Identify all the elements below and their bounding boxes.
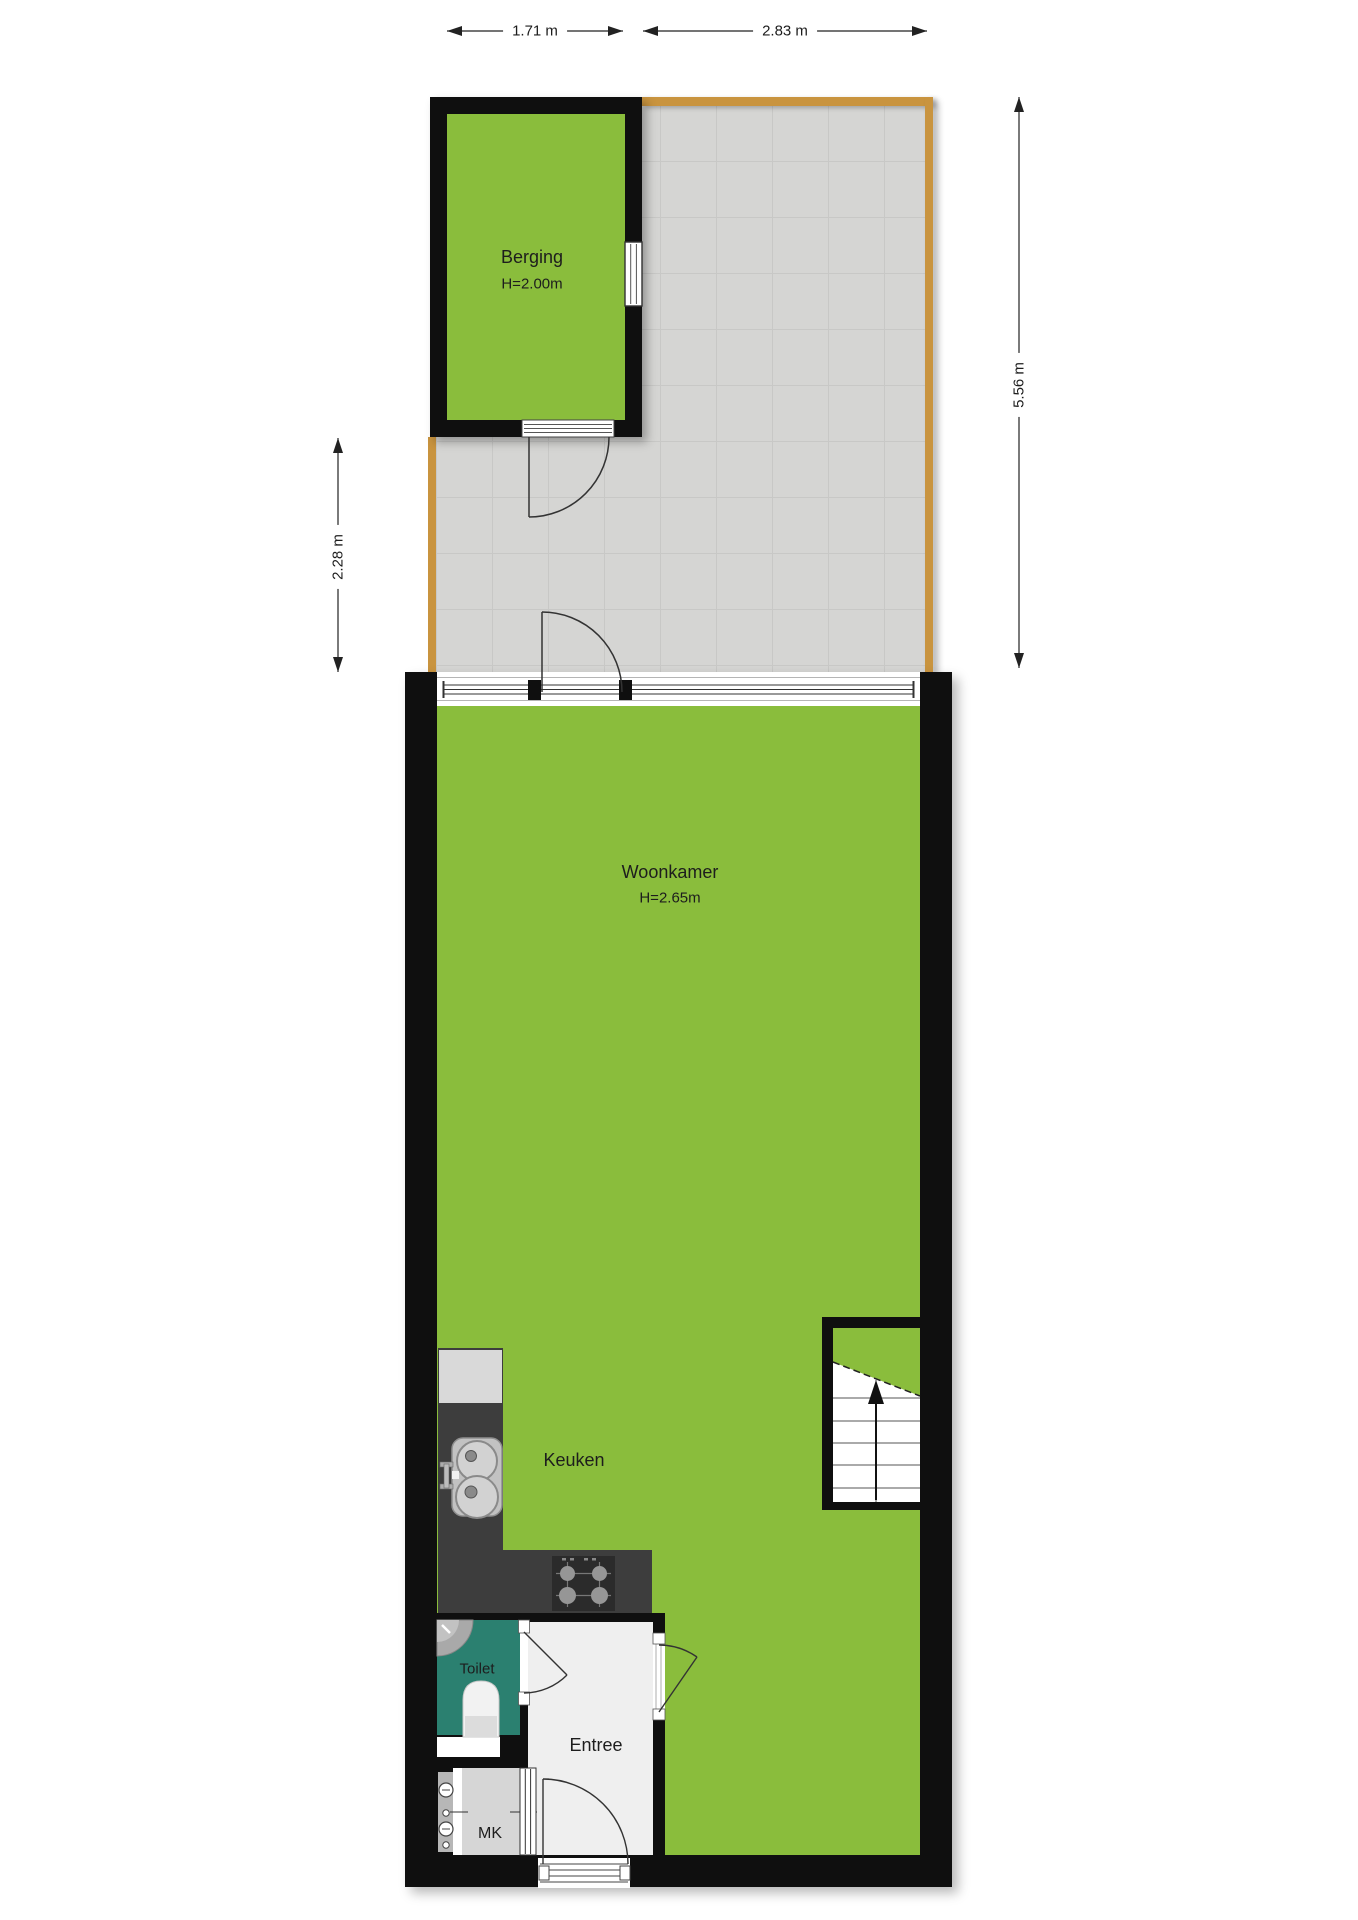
room-label-woonkamer: Woonkamer (622, 863, 719, 881)
berging-room (447, 114, 625, 420)
kitchen-hob (552, 1556, 615, 1611)
terrace-fence-top (642, 97, 933, 106)
wall-bottom (405, 1855, 952, 1887)
floorplan-canvas: Berging H=2.00m Woonkamer H=2.65m Keuken… (0, 0, 1358, 1920)
room-label-toilet: Toilet (459, 1662, 494, 1677)
dimension-label-terrace-left-depth: 2.28 m (329, 525, 348, 589)
kitchen-worktop (439, 1350, 502, 1403)
stairs-well (833, 1328, 920, 1502)
dimension-label-terrace-width: 2.83 m (753, 22, 817, 41)
dimension-label-berging-width: 1.71 m (503, 22, 567, 41)
room-ceiling-woonkamer: H=2.65m (639, 891, 700, 906)
room-label-keuken: Keuken (543, 1451, 604, 1469)
room-label-entree: Entree (569, 1736, 622, 1754)
terrace-fence-left (428, 437, 436, 672)
glass-facade-band (437, 672, 920, 706)
mk-meter-cabinet (438, 1772, 453, 1852)
terrace-fence-right (925, 97, 933, 672)
wall-right (920, 672, 952, 1887)
toilet-room (437, 1620, 520, 1735)
room-ceiling-berging: H=2.00m (501, 277, 562, 292)
room-label-berging: Berging (501, 248, 563, 266)
mk-cabinet-gap (453, 1768, 462, 1855)
toilet-niche (437, 1737, 500, 1757)
room-label-mk: MK (478, 1826, 502, 1842)
wall-left (405, 672, 437, 1887)
dimension-label-terrace-depth: 5.56 m (1010, 353, 1029, 417)
kitchen-counter-bottom (438, 1550, 652, 1613)
